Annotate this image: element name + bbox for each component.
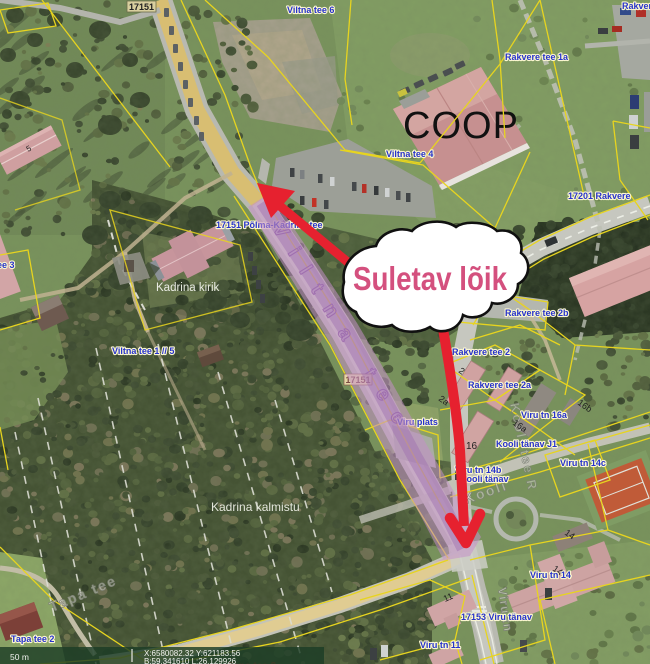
svg-text:17201 Rakvere: 17201 Rakvere bbox=[568, 191, 631, 201]
svg-text:Viltna tee 6: Viltna tee 6 bbox=[287, 5, 334, 15]
svg-text:tee 3: tee 3 bbox=[0, 260, 15, 270]
svg-text:Viru tn 14: Viru tn 14 bbox=[530, 570, 571, 580]
svg-text:Rakvere tee 1a: Rakvere tee 1a bbox=[505, 52, 569, 62]
svg-text:Viltna tee 1 // 5: Viltna tee 1 // 5 bbox=[112, 346, 174, 356]
svg-text:B:59.341610 L:26.129926: B:59.341610 L:26.129926 bbox=[144, 657, 237, 664]
svg-text:Rakvere tee 2b: Rakvere tee 2b bbox=[505, 308, 569, 318]
svg-text:Kadrina kalmistu: Kadrina kalmistu bbox=[211, 500, 300, 514]
svg-text:Viru tn 14c: Viru tn 14c bbox=[560, 458, 606, 468]
svg-text:Rakvere tee 2: Rakvere tee 2 bbox=[452, 347, 510, 357]
svg-text:Kooli tänav: Kooli tänav bbox=[460, 474, 509, 484]
svg-text:Tapa tee 2: Tapa tee 2 bbox=[11, 634, 54, 644]
svg-text:50 m: 50 m bbox=[10, 652, 29, 662]
svg-text:Kooli tänav J1: Kooli tänav J1 bbox=[496, 439, 557, 449]
svg-text:Suletav lõik: Suletav lõik bbox=[353, 260, 508, 297]
svg-text:Viru tn 11: Viru tn 11 bbox=[420, 640, 460, 650]
svg-text:Viltna tee 4: Viltna tee 4 bbox=[386, 149, 433, 159]
svg-text:Viru tn 16a: Viru tn 16a bbox=[521, 410, 568, 420]
svg-text:17153 Viru tänav: 17153 Viru tänav bbox=[461, 612, 532, 622]
svg-text:17151: 17151 bbox=[129, 2, 154, 12]
svg-text:Kadrina kirik: Kadrina kirik bbox=[156, 282, 220, 294]
svg-text:16: 16 bbox=[466, 441, 478, 452]
svg-text:Rakvere: Rakvere bbox=[622, 1, 650, 11]
svg-text:Rakvere tee 2a: Rakvere tee 2a bbox=[468, 380, 532, 390]
